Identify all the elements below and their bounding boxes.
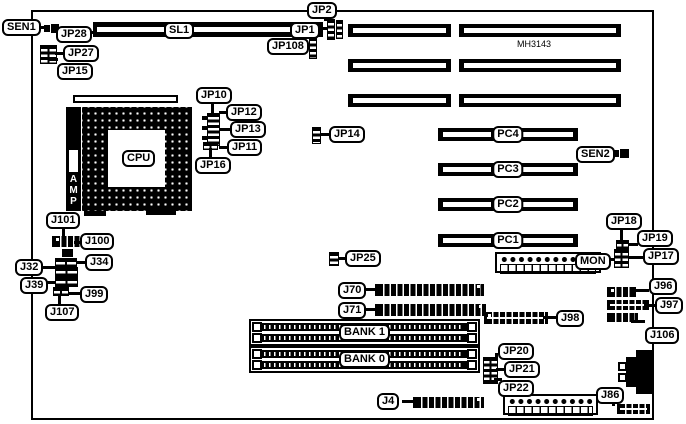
callout-pc3: PC3 <box>492 161 523 178</box>
leader-line <box>366 308 376 311</box>
pci-opening <box>443 238 491 243</box>
callout-mon: MON <box>575 253 611 270</box>
leader-line <box>48 58 58 61</box>
isa-slot-2-long <box>459 59 621 72</box>
callout-bank1: BANK 1 <box>339 324 390 341</box>
pci-slot-pc4: PC4 <box>438 128 578 141</box>
leader-line <box>320 27 328 30</box>
isa-slot-3-long <box>459 94 621 107</box>
callout-jp10: JP10 <box>196 87 232 104</box>
isa-opening <box>464 28 616 33</box>
callout-sl1: SL1 <box>164 22 194 39</box>
callout-j100: J100 <box>80 233 114 250</box>
leader-line <box>631 320 645 323</box>
callout-j32: J32 <box>15 259 43 276</box>
callout-j71: J71 <box>338 302 366 319</box>
pci-slot-pc1: PC1 <box>438 234 578 247</box>
header-j32 <box>55 267 78 277</box>
callout-jp25: JP25 <box>345 250 381 267</box>
keyboard-connector <box>636 350 653 394</box>
jumper-jp19-jp17 <box>614 249 629 268</box>
callout-jp27: JP27 <box>63 45 99 62</box>
socket-foot <box>146 209 176 215</box>
simm-clip <box>467 349 477 359</box>
pci-opening <box>443 167 491 172</box>
jumper-jp18 <box>616 240 629 249</box>
sen2-connector <box>620 149 629 158</box>
callout-j39: J39 <box>20 277 48 294</box>
callout-j34: J34 <box>85 254 113 271</box>
board-model-text: MH3143 <box>517 39 551 49</box>
callout-jp19: JP19 <box>637 230 673 247</box>
slot-sl1 <box>93 22 323 37</box>
simm-clip <box>467 360 477 370</box>
jumper-pin <box>202 136 207 140</box>
header-j107 <box>53 287 69 296</box>
callout-jp11: JP11 <box>227 139 262 156</box>
isa-slot-2-short <box>348 59 451 72</box>
leader-line <box>42 266 56 269</box>
callout-jp20: JP20 <box>498 343 534 360</box>
pci-slot-pc2: PC2 <box>438 198 578 211</box>
jumper-jp2-a <box>327 19 335 40</box>
amp-brand-text: AMP <box>69 174 78 207</box>
callout-pc4: PC4 <box>492 126 523 143</box>
simm-clip <box>252 322 262 332</box>
isa-slot-1-short <box>348 24 451 37</box>
pci-slot-pc3: PC3 <box>438 163 578 176</box>
leader-line <box>366 288 376 291</box>
pin1-mark <box>477 398 480 401</box>
header-j98 <box>484 312 548 324</box>
header-j100 <box>62 249 73 257</box>
keyboard-connector-pin <box>618 362 627 371</box>
header-j97 <box>607 300 649 310</box>
callout-jp18: JP18 <box>606 213 642 230</box>
callout-sen1: SEN1 <box>2 19 41 36</box>
header-j70 <box>375 284 484 296</box>
header-j71 <box>375 304 486 316</box>
callout-jp21: JP21 <box>504 361 540 378</box>
callout-j86: J86 <box>596 387 624 404</box>
callout-cpu: CPU <box>122 150 155 167</box>
socket-foot <box>84 211 106 216</box>
callout-j4: J4 <box>377 393 399 410</box>
callout-j106: J106 <box>645 327 679 344</box>
callout-jp108: JP108 <box>267 38 309 55</box>
callout-jp13: JP13 <box>230 121 266 138</box>
power-connector <box>503 394 598 415</box>
jumper-pin <box>202 116 207 120</box>
amp-lever-window <box>69 150 78 172</box>
pin1-mark <box>611 289 614 292</box>
callout-j97: J97 <box>655 297 683 314</box>
power-connector-cells <box>508 406 593 416</box>
pin1-mark <box>477 285 480 288</box>
simm-clip <box>467 322 477 332</box>
isa-opening <box>353 98 446 103</box>
isa-slot-3-short <box>348 94 451 107</box>
callout-pc2: PC2 <box>492 196 523 213</box>
callout-j101: J101 <box>46 212 80 229</box>
isa-opening <box>464 98 616 103</box>
header-j86 <box>617 404 650 414</box>
header-j4 <box>413 397 484 408</box>
callout-jp2: JP2 <box>307 2 337 19</box>
leader-line <box>320 133 329 136</box>
jumper-pin <box>202 126 207 130</box>
callout-bank0: BANK 0 <box>339 351 390 368</box>
isa-opening <box>353 63 446 68</box>
callout-jp15: JP15 <box>57 63 93 80</box>
leader-line <box>402 400 414 403</box>
header-j39 <box>55 277 78 287</box>
pci-opening <box>443 202 491 207</box>
pin1-mark <box>56 238 59 241</box>
isa-slot-1-long <box>459 24 621 37</box>
pin1-mark <box>479 305 482 308</box>
callout-jp17: JP17 <box>643 248 679 265</box>
callout-jp16: JP16 <box>195 157 231 174</box>
power-connector-pins <box>508 398 593 405</box>
simm-clip <box>252 333 262 343</box>
callout-jp22: JP22 <box>498 380 534 397</box>
callout-jp1: JP1 <box>290 22 320 39</box>
cpu-retention-bar <box>73 95 178 103</box>
jumper-jp108 <box>309 37 317 59</box>
isa-opening <box>353 28 446 33</box>
callout-j107: J107 <box>45 304 79 321</box>
isa-opening <box>464 63 616 68</box>
jumper-jp2-b <box>336 20 343 39</box>
callout-pc1: PC1 <box>492 232 523 249</box>
leader-line <box>630 289 649 292</box>
motherboard-diagram: SL1 JP28 JP1 JP2 JP108 SEN1 JP27 JP15 MH… <box>0 0 686 424</box>
simm-clip <box>467 333 477 343</box>
pci-opening <box>443 132 491 137</box>
keyboard-connector-pin <box>618 373 627 382</box>
callout-j70: J70 <box>338 282 366 299</box>
simm-clip <box>252 360 262 370</box>
callout-sen2: SEN2 <box>576 146 615 163</box>
callout-j96: J96 <box>649 278 677 295</box>
callout-jp12: JP12 <box>226 104 262 121</box>
callout-jp14: JP14 <box>329 126 365 143</box>
leader-line <box>543 316 556 319</box>
callout-j99: J99 <box>80 286 108 303</box>
pin1-mark <box>488 314 491 317</box>
callout-jp28: JP28 <box>56 26 92 43</box>
keyboard-connector-neck <box>626 357 636 387</box>
leader-line <box>219 128 230 131</box>
simm-clip <box>252 349 262 359</box>
leader-line <box>629 256 644 259</box>
callout-j98: J98 <box>556 310 584 327</box>
slot-sl1-opening <box>97 27 319 32</box>
